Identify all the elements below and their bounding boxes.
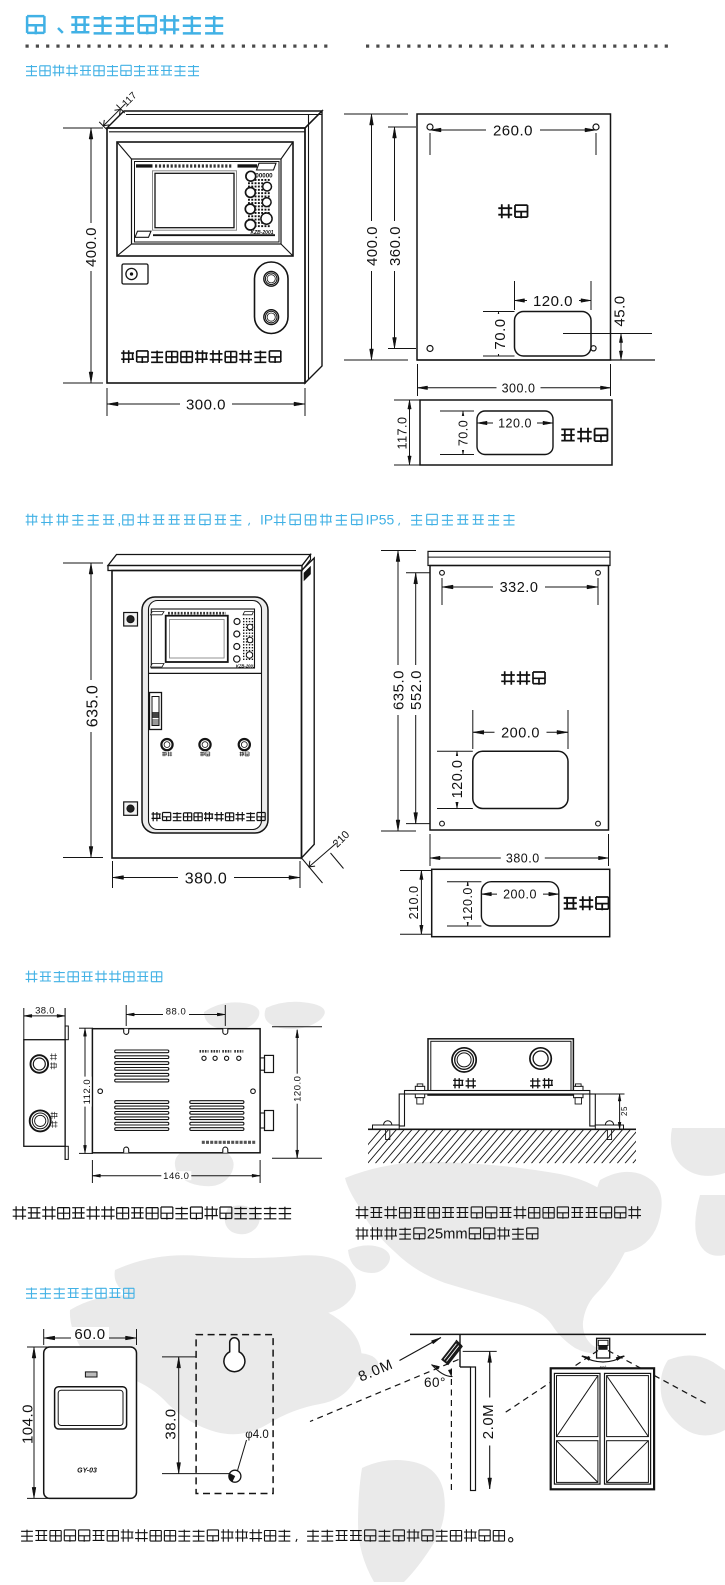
svg-text:60.0: 60.0 bbox=[74, 1326, 105, 1343]
svg-text:KZB-2001: KZB-2001 bbox=[236, 664, 256, 669]
svg-text:300.0: 300.0 bbox=[502, 381, 536, 395]
svg-text:400.0: 400.0 bbox=[364, 226, 381, 266]
svg-text:260.0: 260.0 bbox=[493, 122, 533, 139]
svg-text:332.0: 332.0 bbox=[500, 580, 539, 596]
svg-text:210.0: 210.0 bbox=[407, 886, 421, 920]
svg-text:380.0: 380.0 bbox=[185, 870, 228, 887]
svg-text:IP55: IP55 bbox=[366, 511, 395, 527]
svg-text:210: 210 bbox=[331, 829, 352, 850]
svg-text:38.0: 38.0 bbox=[162, 1408, 179, 1439]
svg-text:300.0: 300.0 bbox=[186, 396, 226, 413]
svg-text:2.0M: 2.0M bbox=[480, 1404, 497, 1439]
svg-text:200.0: 200.0 bbox=[501, 726, 540, 742]
svg-text:25: 25 bbox=[620, 1106, 629, 1116]
svg-text:112.0: 112.0 bbox=[82, 1079, 93, 1105]
svg-text:38.0: 38.0 bbox=[35, 1005, 55, 1016]
svg-text:380.0: 380.0 bbox=[506, 852, 540, 866]
svg-text:GY-03: GY-03 bbox=[77, 1468, 97, 1475]
svg-text:120.0: 120.0 bbox=[450, 760, 466, 799]
svg-text:120.0: 120.0 bbox=[533, 293, 573, 310]
svg-text:400.0: 400.0 bbox=[83, 227, 100, 267]
svg-text:104.0: 104.0 bbox=[19, 1404, 36, 1444]
svg-text:KZB-2001: KZB-2001 bbox=[250, 230, 273, 236]
svg-text:25mm: 25mm bbox=[427, 1227, 468, 1243]
svg-text:60°: 60° bbox=[424, 1375, 446, 1390]
svg-text:635.0: 635.0 bbox=[84, 685, 101, 728]
svg-text:70.0: 70.0 bbox=[457, 420, 471, 446]
svg-text:146.0: 146.0 bbox=[163, 1171, 189, 1182]
svg-text:IP: IP bbox=[260, 511, 273, 527]
svg-text:117.0: 117.0 bbox=[396, 417, 410, 450]
svg-text:120.0: 120.0 bbox=[498, 417, 532, 431]
svg-text:360.0: 360.0 bbox=[387, 226, 404, 266]
svg-text:,: , bbox=[117, 511, 121, 527]
svg-text:552.0: 552.0 bbox=[408, 670, 425, 710]
svg-text:00000: 00000 bbox=[255, 173, 273, 180]
svg-text:88.0: 88.0 bbox=[166, 1007, 187, 1018]
svg-text:45.0: 45.0 bbox=[611, 295, 628, 326]
svg-text:φ4.0: φ4.0 bbox=[245, 1429, 268, 1441]
svg-text:120.0: 120.0 bbox=[293, 1076, 304, 1102]
svg-text:70.0: 70.0 bbox=[492, 318, 509, 349]
svg-text:120.0: 120.0 bbox=[461, 887, 475, 921]
svg-text:200.0: 200.0 bbox=[503, 888, 537, 902]
svg-text:635.0: 635.0 bbox=[390, 670, 407, 710]
